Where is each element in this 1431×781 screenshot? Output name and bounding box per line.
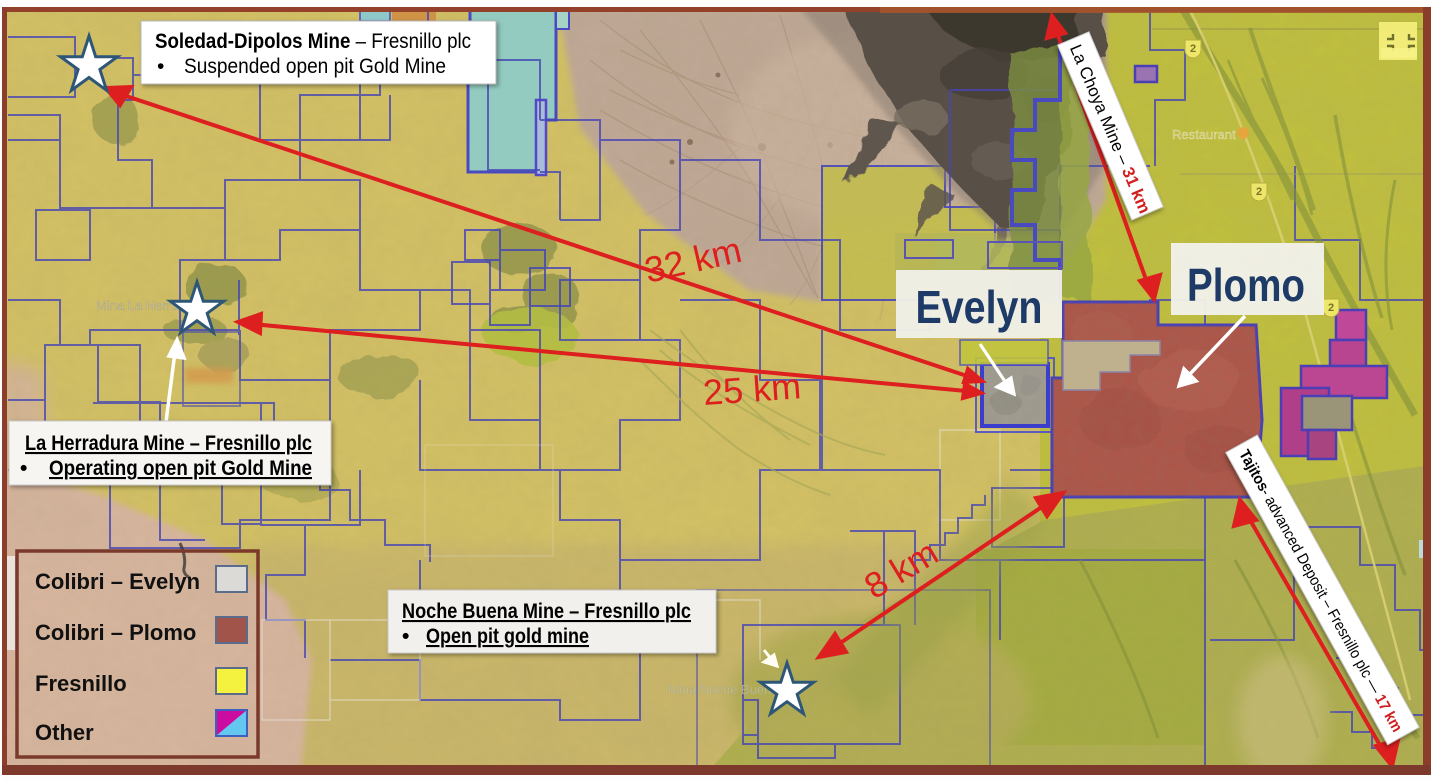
svg-text:Restaurant: Restaurant bbox=[1172, 127, 1236, 142]
svg-text:Suspended open pit Gold Mine: Suspended open pit Gold Mine bbox=[184, 55, 446, 78]
svg-text:Operating open pit Gold Mine: Operating open pit Gold Mine bbox=[49, 457, 312, 480]
svg-text:Soledad-Dipolos Mine – Fresnil: Soledad-Dipolos Mine – Fresnillo plc bbox=[155, 30, 471, 53]
svg-text:Evelyn: Evelyn bbox=[916, 281, 1043, 333]
svg-text:2: 2 bbox=[1328, 302, 1334, 314]
svg-text:Colibri – Plomo: Colibri – Plomo bbox=[35, 620, 196, 645]
svg-text:Open pit gold mine: Open pit gold mine bbox=[426, 625, 589, 648]
svg-text:•: • bbox=[157, 55, 164, 78]
svg-text:Fresnillo: Fresnillo bbox=[35, 671, 127, 696]
svg-text:Noche Buena Mine – Fresnillo p: Noche Buena Mine – Fresnillo plc bbox=[402, 600, 691, 623]
svg-text:25 km: 25 km bbox=[702, 365, 803, 413]
svg-text:2: 2 bbox=[1256, 186, 1262, 198]
svg-text:Plomo: Plomo bbox=[1187, 259, 1305, 311]
svg-text:2: 2 bbox=[1190, 43, 1196, 55]
svg-text:•: • bbox=[402, 625, 409, 648]
svg-text:Colibri – Evelyn: Colibri – Evelyn bbox=[35, 569, 200, 594]
svg-text:La Herradura Mine – Fresnillo: La Herradura Mine – Fresnillo plc bbox=[25, 432, 312, 455]
svg-text:Other: Other bbox=[35, 720, 94, 745]
svg-text:•: • bbox=[20, 457, 27, 480]
